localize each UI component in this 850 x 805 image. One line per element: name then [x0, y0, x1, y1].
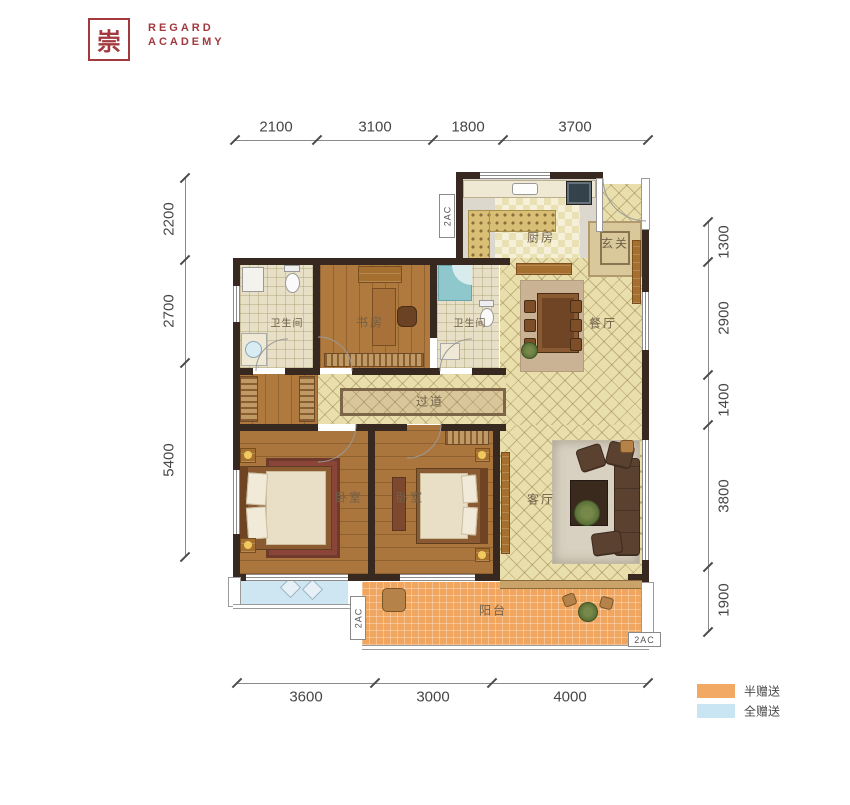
legend-swatch-full-gift — [697, 704, 735, 718]
floor-plan-page: 崇 REGARD ACADEMY — [0, 0, 850, 805]
room-label-entry: 玄关 — [601, 235, 629, 252]
dim-value: 1900 — [716, 583, 733, 616]
dim-value: 4000 — [553, 689, 586, 706]
dim-value: 5400 — [161, 443, 178, 476]
dim-value: 1400 — [716, 383, 733, 416]
legend-label-half-gift: 半赠送 — [744, 683, 780, 700]
dim-value: 3700 — [558, 119, 591, 136]
dim-value: 3800 — [716, 479, 733, 512]
room-label-living: 客厅 — [527, 491, 555, 508]
room-label-dining: 餐厅 — [589, 315, 617, 332]
dim-value: 1300 — [716, 225, 733, 258]
ac-label: 2AC — [353, 608, 363, 629]
dim-value: 2200 — [161, 202, 178, 235]
room-label-corridor: 过道 — [416, 393, 444, 410]
room-label-kitchen: 厨房 — [527, 229, 555, 246]
dim-line-right — [708, 222, 709, 632]
ac-label: 2AC — [442, 206, 452, 227]
dim-line-top — [235, 140, 648, 141]
ac-platform: 2AC — [628, 632, 661, 647]
dim-value: 2700 — [161, 294, 178, 327]
dim-value: 1800 — [451, 119, 484, 136]
room-label-balcony: 阳台 — [479, 602, 507, 619]
room-label-bedroom2: 卧室 — [396, 489, 424, 506]
room-label-study: 书房 — [356, 314, 384, 331]
room-label-bedroom1: 卧室 — [335, 489, 363, 506]
dim-value: 2900 — [716, 301, 733, 334]
dim-value: 3100 — [358, 119, 391, 136]
dim-line-left — [185, 178, 186, 557]
ac-platform: 2AC — [350, 596, 366, 640]
room-label-bath2: 卫生间 — [454, 315, 487, 330]
legend-swatch-half-gift — [697, 684, 735, 698]
ac-label: 2AC — [634, 635, 655, 645]
dim-value: 2100 — [259, 119, 292, 136]
dim-value: 3600 — [289, 689, 322, 706]
dim-value: 3000 — [416, 689, 449, 706]
dim-line-bottom — [237, 683, 648, 684]
room-label-bath1: 卫生间 — [271, 315, 304, 330]
ac-platform: 2AC — [439, 194, 455, 238]
legend-label-full-gift: 全赠送 — [744, 703, 780, 720]
